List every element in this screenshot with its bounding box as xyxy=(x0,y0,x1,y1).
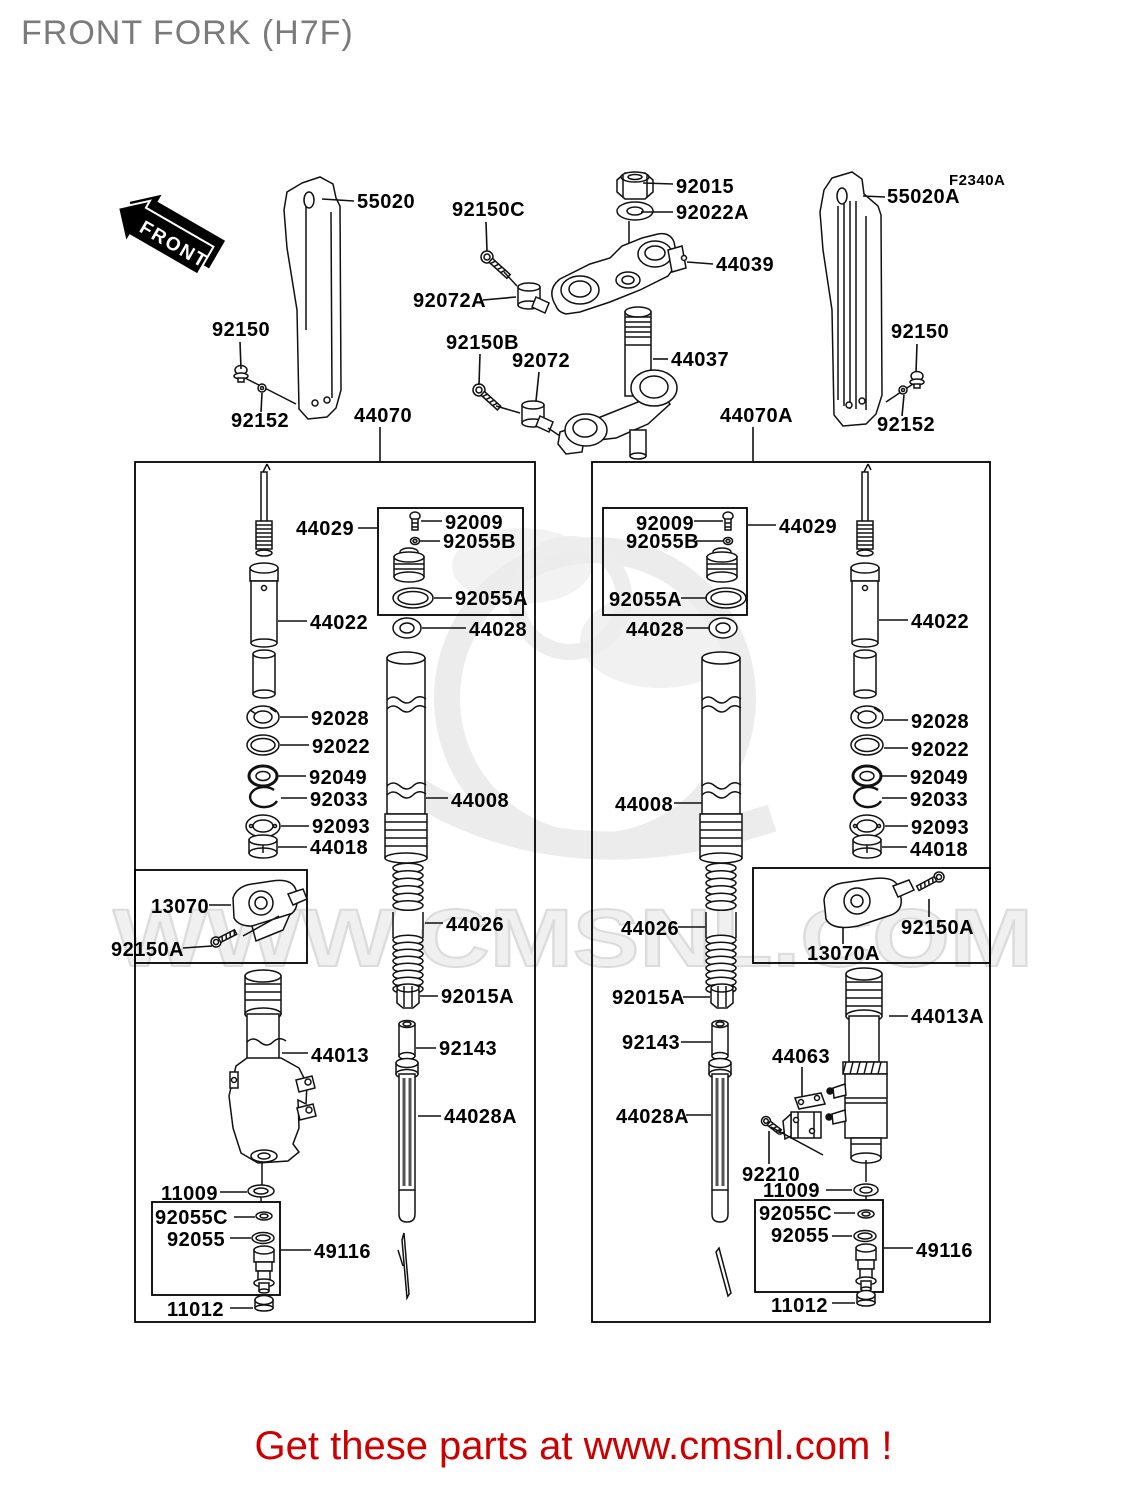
part-label-92055B-right: 92055B xyxy=(626,531,699,553)
part-44029-adjuster-right xyxy=(706,512,746,608)
part-label-13070-left: 13070 xyxy=(151,896,209,918)
part-label-92072A-top: 92072A xyxy=(413,290,486,312)
seal-stack-right xyxy=(850,706,884,858)
part-label-55020-left: 55020 xyxy=(357,191,415,213)
part-label-44028-left: 44028 xyxy=(469,619,527,641)
part-44008-inner-tube-right xyxy=(700,652,742,863)
part-44028A-rod-right xyxy=(709,1059,731,1223)
part-label-92022-right: 92022 xyxy=(911,739,969,761)
leader-92152-right xyxy=(902,395,904,416)
leader-92015-top xyxy=(643,183,673,184)
part-label-92022A-top: 92022A xyxy=(676,202,749,224)
part-label-44026-left: 44026 xyxy=(446,914,504,936)
part-needle-left xyxy=(398,1233,409,1298)
part-label-44063-right: 44063 xyxy=(772,1046,830,1068)
leader-92150C-top xyxy=(486,222,487,251)
leader-55020A-right xyxy=(863,196,885,197)
part-label-92093-left: 92093 xyxy=(312,816,370,838)
part-label-92143-left: 92143 xyxy=(439,1038,497,1060)
part-label-92150A-right: 92150A xyxy=(901,917,974,939)
part-11012-cap-right xyxy=(857,1291,875,1307)
leader-92072-top xyxy=(536,372,539,401)
part-label-44013A-right: 44013A xyxy=(911,1006,984,1028)
part-label-92049-right: 92049 xyxy=(910,767,968,789)
part-label-92152-left: 92152 xyxy=(231,410,289,432)
part-label-44029-left: 44029 xyxy=(296,518,354,540)
part-49116-valve-right xyxy=(854,1210,876,1291)
part-label-92152-right: 92152 xyxy=(877,414,935,436)
part-label-92015A-right: 92015A xyxy=(612,987,685,1009)
part-label-11009-right: 11009 xyxy=(763,1180,820,1202)
leader-44039-top xyxy=(687,262,713,264)
part-label-92150B-top: 92150B xyxy=(446,332,519,354)
part-label-92055A-left: 92055A xyxy=(455,588,528,610)
part-label-92049-left: 92049 xyxy=(309,767,367,789)
part-label-92055-left: 92055 xyxy=(167,1229,225,1251)
part-44028-seal-left xyxy=(393,618,421,638)
diagram-page: FRONT FORK (H7F) WWW.CMSNL.COM 550209215… xyxy=(0,0,1147,1500)
part-92015-stem-nut xyxy=(617,172,653,199)
part-55020-fork-guard-left xyxy=(284,177,341,419)
part-label-92150-left: 92150 xyxy=(212,319,270,341)
part-label-92015-top: 92015 xyxy=(676,176,734,198)
part-label-44070A-right: 44070A xyxy=(720,405,793,427)
part-label-92033-left: 92033 xyxy=(310,789,368,811)
part-label-92055A-right: 92055A xyxy=(609,589,682,611)
part-label-44008-right: 44008 xyxy=(615,794,673,816)
part-label-44008-left: 44008 xyxy=(451,790,509,812)
part-label-92072-top: 92072 xyxy=(512,350,570,372)
part-label-44026-right: 44026 xyxy=(621,918,679,940)
part-label-F2340A-top: F2340A xyxy=(949,172,1005,189)
part-44063-holder-bracket xyxy=(783,1093,825,1139)
part-label-44029-right: 44029 xyxy=(779,516,837,538)
part-44029-adjuster-left xyxy=(393,512,433,608)
part-label-11012-right: 11012 xyxy=(771,1295,828,1317)
part-44008-inner-tube-left xyxy=(385,652,427,863)
part-label-44028A-left: 44028A xyxy=(444,1106,517,1128)
leader-92072A-top xyxy=(483,297,516,300)
part-label-92150A-left: 92150A xyxy=(111,939,184,961)
leader-92150-right xyxy=(916,344,917,372)
part-11012-cap-left xyxy=(255,1296,273,1312)
part-92152-pin-right xyxy=(886,384,913,402)
part-44039-upper-clamp xyxy=(552,234,687,314)
part-label-92033-right: 92033 xyxy=(910,789,968,811)
part-label-92015A-left: 92015A xyxy=(441,986,514,1008)
part-92143-collar-left xyxy=(399,1021,415,1060)
part-label-49116-right: 49116 xyxy=(916,1240,973,1262)
front-direction-marker: FRONT xyxy=(105,179,229,285)
part-label-55020A-right: 55020A xyxy=(887,186,960,208)
part-label-92028-left: 92028 xyxy=(311,708,369,730)
part-44022-damper-right xyxy=(851,464,879,698)
part-44022-damper-left xyxy=(250,464,278,698)
part-label-92093-right: 92093 xyxy=(911,817,969,839)
part-44028A-rod-left xyxy=(396,1059,418,1223)
part-44028-seal-right xyxy=(709,618,737,638)
part-label-44013-left: 44013 xyxy=(311,1045,369,1067)
part-92015A-nut-right xyxy=(711,984,733,1008)
seal-stack-left xyxy=(246,706,280,858)
leader-92150-left xyxy=(240,342,241,369)
part-label-49116-left: 49116 xyxy=(314,1241,371,1263)
part-label-92143-right: 92143 xyxy=(622,1032,680,1054)
part-needle-right xyxy=(716,1248,731,1296)
part-11009-washer-left xyxy=(248,1185,274,1202)
leader-92150B-top xyxy=(479,354,480,385)
part-label-92055C-left: 92055C xyxy=(155,1207,228,1229)
part-label-44022-right: 44022 xyxy=(911,611,969,633)
part-label-44070-left: 44070 xyxy=(354,405,412,427)
part-label-92055B-left: 92055B xyxy=(443,531,516,553)
part-label-44022-left: 44022 xyxy=(310,612,368,634)
part-label-92150C-top: 92150C xyxy=(452,199,525,221)
part-label-13070A-right: 13070A xyxy=(807,943,880,965)
part-label-92022-left: 92022 xyxy=(312,736,370,758)
part-label-11012-left: 11012 xyxy=(167,1299,224,1321)
part-11009-washer-right xyxy=(854,1184,878,1200)
part-55020A-fork-guard-right xyxy=(820,172,882,426)
part-92015A-nut-left xyxy=(397,984,419,1008)
part-92150-bolt-right xyxy=(910,372,924,389)
part-92072-holder xyxy=(522,401,560,436)
part-label-92055C-right: 92055C xyxy=(759,1203,832,1225)
part-label-92028-right: 92028 xyxy=(911,711,969,733)
part-49116-valve-left xyxy=(252,1212,274,1293)
part-92150C-screw xyxy=(479,249,517,286)
part-92072A-holder xyxy=(518,283,549,313)
part-label-44028A-right: 44028A xyxy=(616,1106,689,1128)
part-label-92055-right: 92055 xyxy=(771,1225,829,1247)
part-92150B-screw xyxy=(471,382,520,413)
part-92143-collar-right xyxy=(712,1021,728,1060)
part-44037-steering-stem xyxy=(558,307,677,459)
part-label-44028-right: 44028 xyxy=(626,619,684,641)
part-label-44039-top: 44039 xyxy=(716,254,774,276)
parts-diagram: WWW.CMSNL.COM 5502092150C9201592022A4403… xyxy=(0,0,1147,1500)
part-label-44037-top: 44037 xyxy=(671,349,729,371)
part-92152-pin-left xyxy=(245,378,296,404)
part-label-11009-left: 11009 xyxy=(161,1183,218,1205)
part-label-92150-right: 92150 xyxy=(891,321,949,343)
part-44013-outer-tube-left xyxy=(229,970,316,1185)
footer-banner: Get these parts at www.cmsnl.com ! xyxy=(0,1424,1147,1469)
part-label-44018-left: 44018 xyxy=(310,837,368,859)
part-44013A-outer-tube-right xyxy=(826,968,887,1182)
part-label-44018-right: 44018 xyxy=(910,839,968,861)
